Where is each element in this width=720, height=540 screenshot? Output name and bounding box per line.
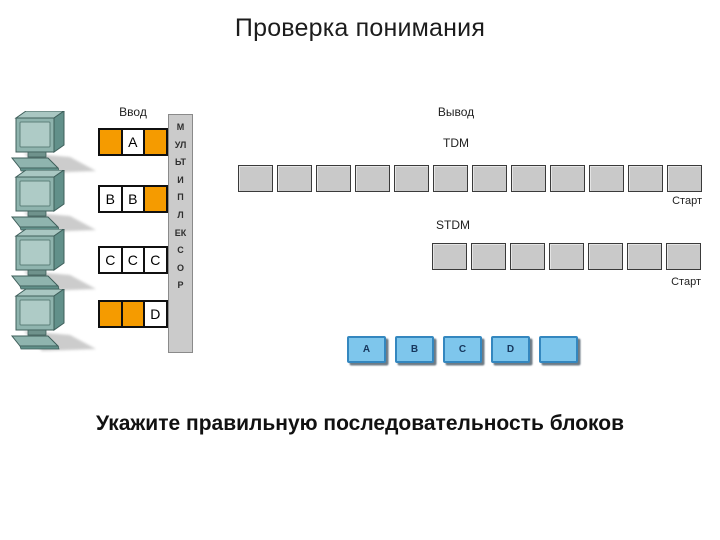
tdm-slot xyxy=(394,165,429,192)
input-cell: B xyxy=(121,185,146,213)
input-cell xyxy=(121,300,146,328)
tdm-slot xyxy=(628,165,663,192)
tdm-slot xyxy=(472,165,507,192)
input-cell xyxy=(98,128,123,156)
computer-icon xyxy=(6,289,98,353)
input-cell xyxy=(143,128,168,156)
stdm-slot xyxy=(588,243,623,270)
tdm-slot xyxy=(355,165,390,192)
stdm-slot xyxy=(627,243,662,270)
slide-title: Проверка понимания xyxy=(0,14,720,43)
multiplexer-label: МУЛЬТИПЛЕКСОР xyxy=(175,119,187,295)
answer-block-b[interactable]: B xyxy=(395,336,434,363)
stdm-slot xyxy=(432,243,467,270)
answer-block-a[interactable]: A xyxy=(347,336,386,363)
multiplexer-bar: МУЛЬТИПЛЕКСОР xyxy=(168,114,193,353)
tdm-slot xyxy=(238,165,273,192)
input-cell xyxy=(98,300,123,328)
tdm-slot xyxy=(589,165,624,192)
output-label: Вывод xyxy=(396,105,516,119)
input-cell: C xyxy=(121,246,146,274)
input-cell xyxy=(143,185,168,213)
slide: Проверка понимания Ввод A B B C C C D МУ… xyxy=(0,0,720,540)
answer-block-c[interactable]: C xyxy=(443,336,482,363)
stdm-slot xyxy=(510,243,545,270)
input-cell: C xyxy=(98,246,123,274)
tdm-label: TDM xyxy=(396,136,516,150)
tdm-slot xyxy=(550,165,585,192)
computer-icon xyxy=(6,111,98,175)
computer-icon xyxy=(6,170,98,234)
tdm-slot-row xyxy=(238,165,702,192)
computer-icon xyxy=(6,229,98,293)
stdm-slot xyxy=(471,243,506,270)
input-row-a: A xyxy=(98,128,168,156)
input-cell: A xyxy=(121,128,146,156)
stdm-label: STDM xyxy=(436,218,470,232)
answer-block-d[interactable]: D xyxy=(491,336,530,363)
stdm-slot-row xyxy=(432,243,701,270)
tdm-slot xyxy=(316,165,351,192)
answer-block-blank[interactable] xyxy=(539,336,578,363)
input-row-d: D xyxy=(98,300,168,328)
stdm-slot xyxy=(549,243,584,270)
question-text: Укажите правильную последовательность бл… xyxy=(0,412,720,436)
tdm-slot xyxy=(667,165,702,192)
answer-blocks: A B C D xyxy=(347,336,578,363)
input-row-c: C C C xyxy=(98,246,168,274)
stdm-start-label: Старт xyxy=(432,276,701,288)
tdm-slot xyxy=(511,165,546,192)
input-cell: D xyxy=(143,300,168,328)
input-cell: B xyxy=(98,185,123,213)
tdm-slot xyxy=(277,165,312,192)
tdm-slot xyxy=(433,165,468,192)
stdm-slot xyxy=(666,243,701,270)
input-cell: C xyxy=(143,246,168,274)
input-label: Ввод xyxy=(98,105,168,119)
tdm-start-label: Старт xyxy=(238,195,702,207)
input-row-b: B B xyxy=(98,185,168,213)
